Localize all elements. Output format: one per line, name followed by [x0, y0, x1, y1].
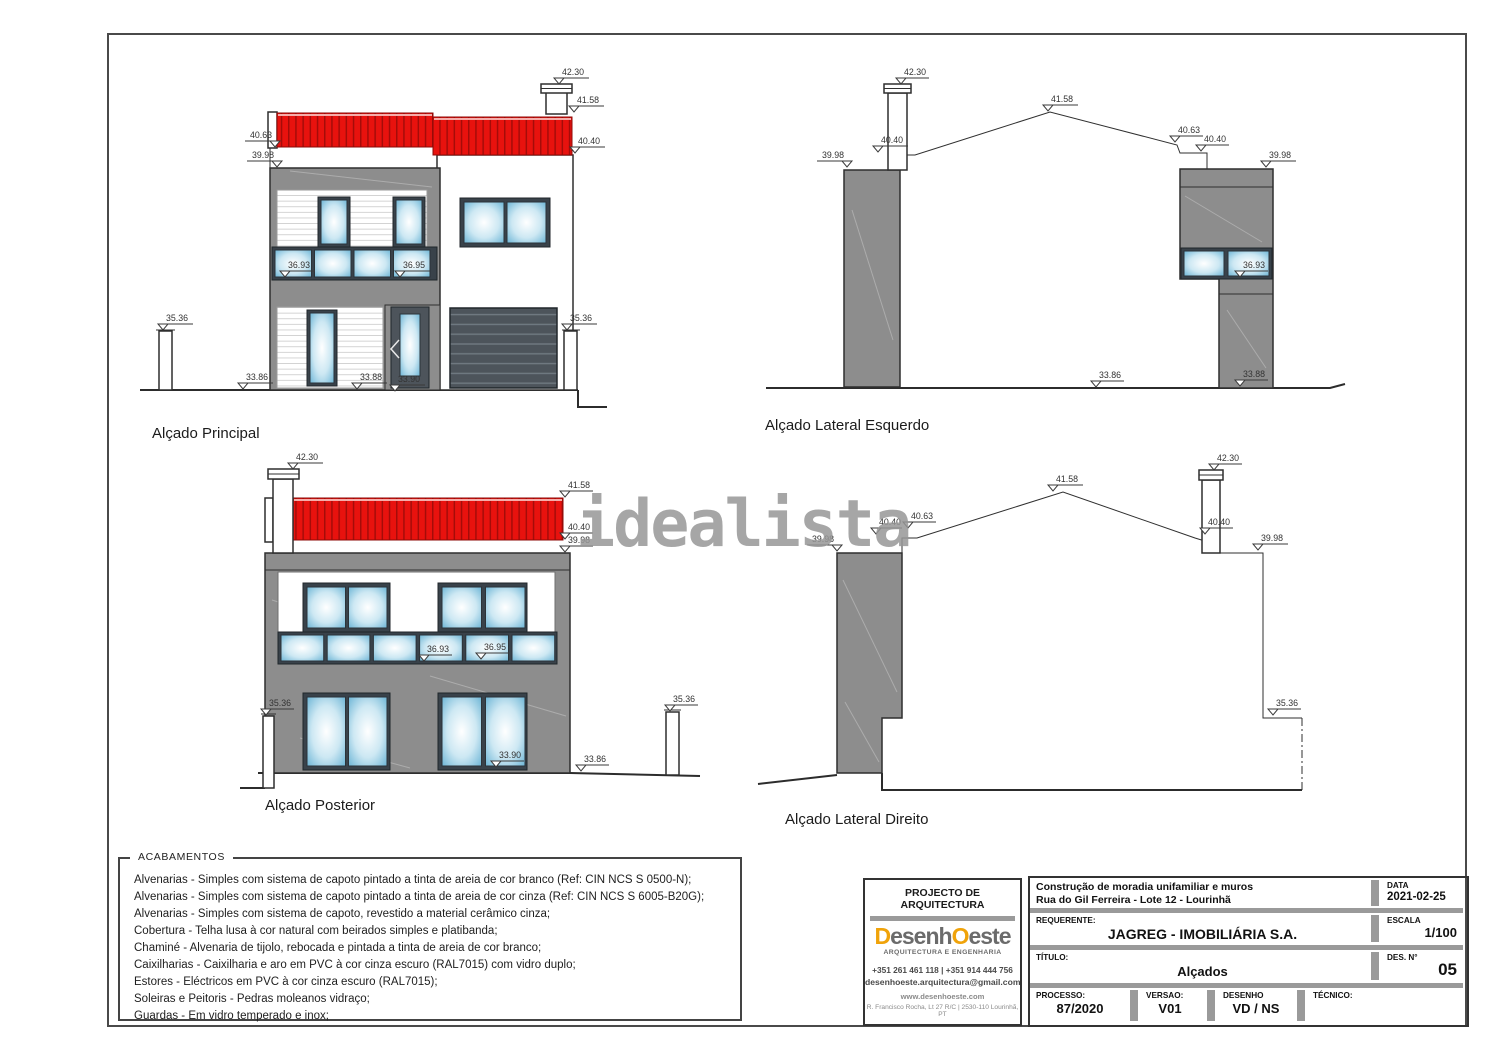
divider-bar [1371, 880, 1379, 906]
dimension-label: 40.40 [1196, 134, 1229, 151]
acabamentos-item: Guardas - Em vidro temperado e inox; [134, 1008, 740, 1025]
svg-text:36.93: 36.93 [288, 260, 310, 270]
logo-letter-o: O [952, 923, 969, 949]
window [307, 310, 337, 386]
window [438, 583, 527, 632]
divider-bar [1207, 990, 1215, 1021]
chimney [541, 84, 572, 114]
project-line1: Construção de moradia unifamiliar e muro… [1036, 881, 1253, 894]
svg-text:39.98: 39.98 [1269, 150, 1291, 160]
dimension-label: 41.58 [1048, 474, 1083, 491]
svg-text:35.36: 35.36 [269, 698, 291, 708]
caption-principal: Alçado Principal [152, 425, 260, 442]
dimension-label: 35.36 [158, 313, 193, 330]
acabamentos-item: Estores - Eléctricos em PVC à cor cinza … [134, 974, 740, 991]
garage-door [450, 308, 557, 388]
dimension-label: 33.86 [576, 754, 609, 771]
dimension-label: 39.98 [1261, 150, 1296, 167]
dimension-label: 39.98 [247, 150, 282, 167]
svg-text:33.86: 33.86 [584, 754, 606, 764]
email-address: desenhoeste.arquitectura@gmail.com [865, 977, 1020, 987]
dimension-label: 33.86 [1091, 370, 1124, 387]
svg-text:33.90: 33.90 [499, 750, 521, 760]
svg-text:42.30: 42.30 [562, 67, 584, 77]
watermark: idealista [576, 492, 910, 557]
chimney [1199, 470, 1223, 553]
svg-text:39.98: 39.98 [252, 150, 274, 160]
window [318, 197, 350, 247]
svg-text:40.40: 40.40 [1204, 134, 1226, 144]
titleblock-header: PROJECTO DE ARQUITECTURA [865, 887, 1020, 911]
acabamentos-box: ACABAMENTOS Alvenarias - Simples com sis… [118, 857, 742, 1021]
divider-bar [1130, 990, 1138, 1021]
caption-posterior: Alçado Posterior [265, 797, 375, 814]
desenhoeste-logo: DesenhOeste [865, 924, 1020, 949]
acabamentos-item: Caixilharias - Caixilharia e aro em PVC … [134, 957, 740, 974]
phone-numbers: +351 261 461 118 | +351 914 444 756 [865, 965, 1020, 975]
logo-letter-d: D [874, 923, 890, 949]
requerente-value: JAGREG - IMOBILIÁRIA S.A. [1030, 926, 1375, 942]
logo-text: este [968, 923, 1010, 949]
data-label: DATA [1387, 881, 1409, 890]
svg-text:35.36: 35.36 [673, 694, 695, 704]
svg-text:41.58: 41.58 [577, 95, 599, 105]
svg-text:40.40: 40.40 [1208, 517, 1230, 527]
roof [268, 112, 572, 155]
svg-text:33.86: 33.86 [246, 372, 268, 382]
dimension-label: 42.30 [554, 67, 589, 84]
desenho-value: VD / NS [1215, 1001, 1297, 1016]
dimension-label: 41.58 [569, 95, 604, 112]
acabamentos-item: Chaminé - Alvenaria de tijolo, rebocada … [134, 940, 740, 957]
dimension-label: 39.98 [817, 150, 852, 167]
dimension-label: 35.36 [665, 694, 698, 711]
svg-text:36.95: 36.95 [484, 642, 506, 652]
caption-direito: Alçado Lateral Direito [785, 811, 928, 828]
dimension-label: 42.30 [288, 452, 323, 469]
svg-text:40.40: 40.40 [578, 136, 600, 146]
window [393, 197, 425, 247]
svg-text:35.36: 35.36 [570, 313, 592, 323]
dimension-label: 41.58 [1043, 94, 1078, 111]
data-value: 2021-02-25 [1387, 891, 1446, 903]
titulo-value: Alçados [1030, 964, 1375, 979]
processo-value: 87/2020 [1030, 1001, 1130, 1016]
tecnico-label: TÉCNICO: [1313, 991, 1353, 1000]
dimension-label: 35.36 [1268, 698, 1301, 715]
svg-text:39.98: 39.98 [822, 150, 844, 160]
acabamentos-item: Alvenarias - Simples com sistema de capo… [134, 872, 740, 889]
titleblock-project: Construção de moradia unifamiliar e muro… [1028, 876, 1469, 1027]
dimension-label: 42.30 [1209, 453, 1242, 470]
caption-esquerdo: Alçado Lateral Esquerdo [765, 417, 929, 434]
logo-subtitle: ARQUITECTURA E ENGENHARIA [865, 949, 1020, 956]
svg-text:35.36: 35.36 [1276, 698, 1298, 708]
svg-text:33.86: 33.86 [1099, 370, 1121, 380]
project-description: Construção de moradia unifamiliar e muro… [1036, 881, 1253, 907]
drawing-sheet: 42.30 41.58 40.63 40.40 39.98 36.93 36.9… [0, 0, 1500, 1060]
svg-text:35.36: 35.36 [166, 313, 188, 323]
elevation-principal: 42.30 41.58 40.63 40.40 39.98 36.93 36.9… [140, 67, 607, 442]
svg-text:42.30: 42.30 [296, 452, 318, 462]
svg-text:40.63: 40.63 [250, 130, 272, 140]
svg-text:40.40: 40.40 [881, 135, 903, 145]
divider-bar [1030, 908, 1463, 913]
divider-bar [1030, 945, 1463, 950]
roof [265, 498, 563, 542]
svg-text:36.95: 36.95 [403, 260, 425, 270]
window [460, 198, 550, 247]
website: www.desenhoeste.com [865, 992, 1020, 1001]
logo-text: esenh [890, 923, 951, 949]
acabamentos-item: Alvenarias - Simples com sistema de capo… [134, 906, 740, 923]
street-address: R. Francisco Rocha, Lt 27 R/C | 2530-110… [865, 1004, 1020, 1018]
window [303, 583, 390, 632]
desnum-value: 05 [1381, 960, 1457, 980]
svg-text:40.63: 40.63 [911, 511, 933, 521]
dimension-label: 40.40 [570, 136, 605, 153]
svg-text:42.30: 42.30 [1217, 453, 1239, 463]
svg-text:36.93: 36.93 [427, 644, 449, 654]
requerente-label: REQUERENTE: [1036, 916, 1096, 925]
svg-text:42.30: 42.30 [904, 67, 926, 77]
titleblock-architect: PROJECTO DE ARQUITECTURA DesenhOeste ARQ… [863, 878, 1022, 1026]
divider-bar [1297, 990, 1305, 1021]
svg-text:40.63: 40.63 [1178, 125, 1200, 135]
desenho-label: DESENHO [1223, 991, 1264, 1000]
divider-bar [870, 916, 1015, 921]
balcony-glazing [278, 632, 557, 664]
acabamentos-item: Soleiras e Peitoris - Pedras moleanos vi… [134, 991, 740, 1008]
project-line2: Rua do Gil Ferreira - Lote 12 - Lourinhã [1036, 894, 1253, 907]
acabamentos-list: Alvenarias - Simples com sistema de capo… [120, 859, 740, 1025]
versao-label: VERSAO: [1146, 991, 1183, 1000]
dimension-label: 42.30 [896, 67, 929, 84]
escala-value: 1/100 [1381, 925, 1457, 940]
dimension-label: 39.98 [1253, 533, 1288, 550]
dimension-label: 33.86 [238, 372, 273, 389]
svg-text:33.88: 33.88 [1243, 369, 1265, 379]
divider-bar [1030, 983, 1463, 988]
divider-bar [1371, 952, 1379, 980]
svg-text:41.58: 41.58 [1051, 94, 1073, 104]
elevation-esquerdo: 42.30 41.58 40.40 39.98 40.63 40.40 39.9… [765, 67, 1345, 434]
svg-text:33.90: 33.90 [398, 374, 420, 384]
window [303, 693, 390, 770]
versao-value: V01 [1138, 1001, 1202, 1016]
divider-bar [1371, 915, 1379, 942]
svg-text:33.88: 33.88 [360, 372, 382, 382]
acabamentos-item: Cobertura - Telha lusa à cor natural com… [134, 923, 740, 940]
escala-label: ESCALA [1387, 916, 1421, 925]
svg-text:36.93: 36.93 [1243, 260, 1265, 270]
svg-text:39.98: 39.98 [1261, 533, 1283, 543]
acabamentos-title: ACABAMENTOS [130, 851, 233, 863]
svg-text:41.58: 41.58 [1056, 474, 1078, 484]
titulo-label: TÍTULO: [1036, 953, 1068, 962]
acabamentos-item: Alvenarias - Simples com sistema de capo… [134, 889, 740, 906]
processo-label: PROCESSO: [1036, 991, 1085, 1000]
dimension-label: 40.63 [1170, 125, 1203, 142]
